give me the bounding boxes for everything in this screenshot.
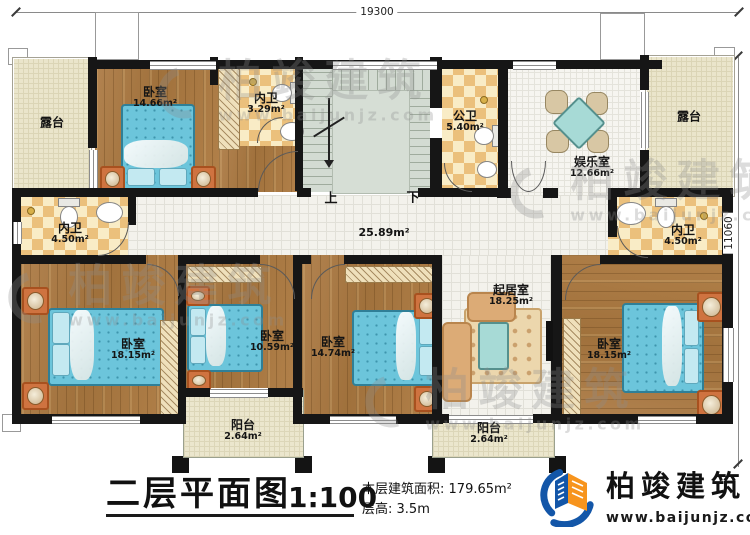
sofa [442,322,472,402]
pillow [127,168,155,186]
pillow [190,308,206,336]
room-label-balcony-left: 阳台2.64m² [224,419,262,443]
floor-height-text: 层高: 3.5m [362,503,430,516]
wall [640,55,649,90]
bed-sheet [206,306,226,366]
stair-arrow-head-icon [324,160,334,168]
wall [432,255,442,421]
room-label-terrace-right: 露台 [677,110,701,123]
sliding-door [641,92,649,148]
room-label-public-bath: 公卫5.40m² [446,110,484,134]
room-label-bedroom-bottom-right: 卧室18.15m² [587,338,631,362]
faucet-icon [700,212,708,220]
wardrobe [563,318,581,424]
faucet-icon [480,96,488,104]
bed-sheet [662,306,682,386]
window [513,61,556,70]
wall [498,60,508,190]
wall [293,255,302,424]
bed-sheet [124,140,188,168]
room-label-living: 起居室18.25m² [489,284,533,308]
room-label-recreation: 娱乐室12.66m² [570,156,614,180]
wardrobe [218,64,240,150]
faucet-icon [249,78,257,86]
brand-logo-icon [537,463,599,527]
window [333,61,437,70]
right-dimension-line [738,57,739,467]
room-label-ensuite-bath-left: 内卫4.50m² [51,222,89,246]
nightstand [22,287,49,315]
room-label-bedroom-second: 卧室10.59m² [250,330,294,354]
window [13,222,22,244]
pillow [684,348,699,384]
sliding-door [210,389,268,398]
pillow [159,168,187,186]
wall [88,57,97,148]
window [52,416,140,424]
nightstand [22,382,49,410]
top-dimension-value: 19300 [356,6,397,18]
bed-sheet [396,312,416,380]
right-dimension-value: 11060 [723,212,735,253]
room-label-terrace-left: 露台 [40,116,64,129]
corridor-area-label: 25.89m² [358,227,409,239]
terrace-door [89,150,98,188]
stair-treads [408,90,430,192]
faucet-icon [27,207,35,215]
roof-box [600,13,645,60]
room-label-bedroom-bottom-left: 卧室18.15m² [111,338,155,362]
sink [96,202,123,223]
wall [608,195,617,237]
wardrobe [187,266,262,283]
room-terrace-right [645,55,735,197]
sink [616,202,646,225]
wall [543,188,558,198]
wardrobe [345,266,437,283]
column [428,456,445,473]
window [723,328,734,382]
stair-down-label: 下 [406,187,419,206]
wall [344,255,440,264]
floor-area-text: 本层建筑面积: 179.65m² [362,483,512,496]
wall [178,255,260,264]
wall [12,255,146,264]
staircase [300,64,430,192]
coffee-table [478,322,509,370]
brand-name: 柏竣建筑 [606,472,746,501]
window [330,416,396,424]
nightstand [186,286,210,306]
wall [430,138,442,192]
room-label-balcony-right: 阳台2.64m² [470,422,508,446]
stair-landing [332,90,410,194]
wall [640,150,649,197]
column [172,456,189,473]
stair-up-label: 上 [324,188,337,207]
pillow [190,336,206,364]
room-label-bedroom-top-left: 卧室14.66m² [133,86,177,110]
room-label-bedroom-third: 卧室14.74m² [311,336,355,360]
window [150,61,216,70]
wardrobe [160,320,180,420]
roof-box [95,12,139,60]
window [638,416,696,424]
wall [608,188,733,197]
wall [178,255,186,424]
tv [546,321,553,361]
floor-plan-canvas: 19300 11060 [0,0,750,535]
wall [533,414,553,423]
pillow [52,312,70,344]
wall [600,255,733,264]
brand-website: www.baijunjz.com [606,511,750,525]
room-label-ensuite-bath-top: 内卫3.29m² [247,92,285,116]
room-label-ensuite-bath-right: 内卫4.50m² [664,224,702,248]
wall [128,195,136,225]
column [295,456,312,473]
sink [477,161,497,178]
drawing-title: 二层平面图 [106,477,291,511]
bed-sheet [70,310,94,380]
pillow [52,344,70,376]
stair-direction-arrow [328,98,330,162]
title-underline [106,514,354,517]
